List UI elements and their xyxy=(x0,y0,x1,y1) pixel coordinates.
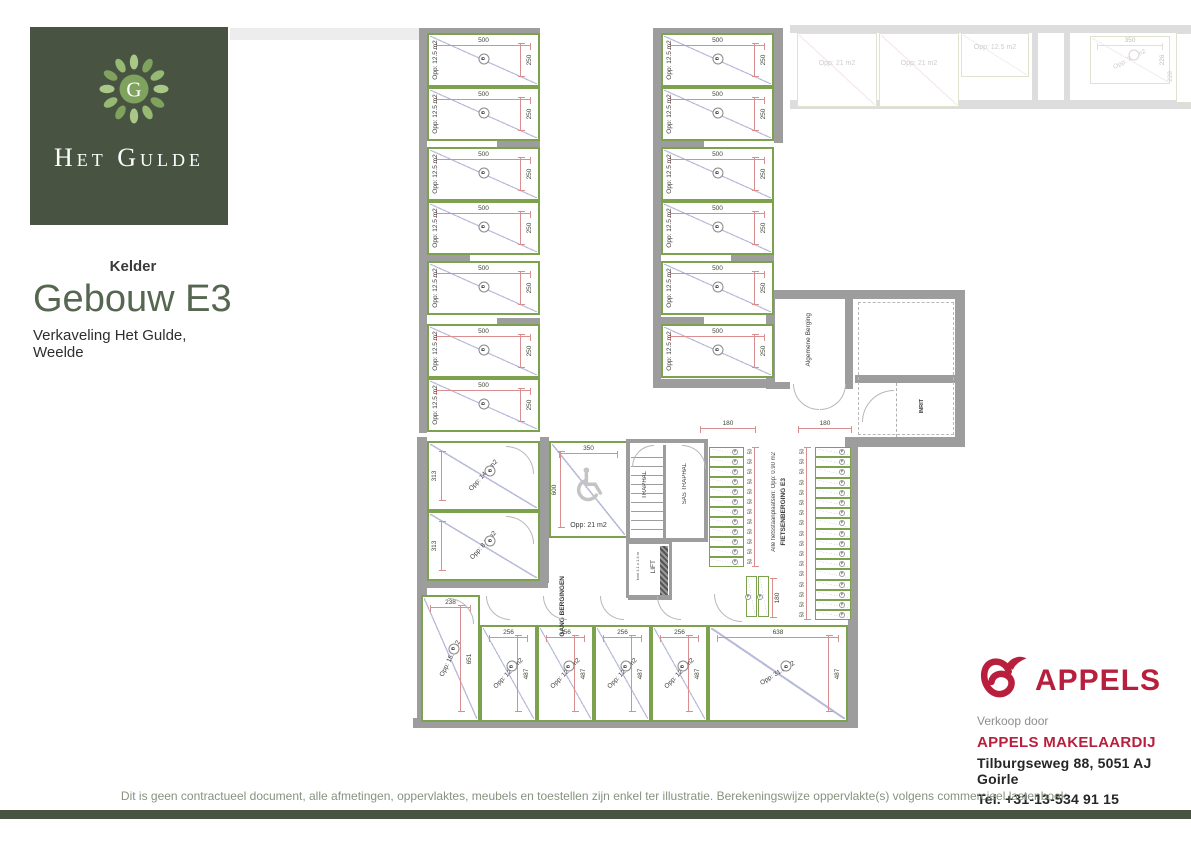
dim-label: 50 xyxy=(800,479,805,485)
unit-marker-label: B xyxy=(481,402,486,405)
unit-marker-label: B xyxy=(680,664,685,667)
dim-label: 180 xyxy=(775,593,782,604)
unit-marker: B xyxy=(478,53,489,64)
area-label: Opp: 12.5 m2 xyxy=(667,40,674,79)
unit-marker: B xyxy=(478,167,489,178)
dim-depth-label: 487 xyxy=(695,668,702,679)
bike-slot: P xyxy=(709,507,744,517)
lift-label: LIFT xyxy=(651,560,658,573)
dim-line: 500 xyxy=(436,99,531,100)
unit-marker: B xyxy=(478,398,489,409)
bike-slot-marker: P xyxy=(732,529,738,535)
unit-marker-label: B xyxy=(488,539,493,542)
dim-line xyxy=(520,157,521,191)
unit-marker: B xyxy=(478,281,489,292)
wheelchair-icon xyxy=(568,465,610,507)
door-arc xyxy=(600,596,624,620)
wall xyxy=(653,379,775,388)
dim-line xyxy=(520,211,521,245)
bike-slot-label: P xyxy=(734,470,736,474)
area-label: Opp: 12.5 m2 xyxy=(433,331,440,370)
stair-wall xyxy=(663,445,666,540)
unit-marker-label: B xyxy=(715,111,720,114)
dim-depth-label: 487 xyxy=(524,668,531,679)
wall xyxy=(653,28,661,384)
bike-slot: P xyxy=(815,539,851,549)
dim-width-label: 256 xyxy=(603,630,642,637)
dim-label: 50 xyxy=(800,561,805,567)
dim-line xyxy=(441,451,442,501)
dim-label: 50 xyxy=(748,449,753,455)
stair-lobby-label: SAS TRAPHAL xyxy=(682,463,688,504)
bike-slot-marker: P xyxy=(732,459,738,465)
dim-width-label: 500 xyxy=(436,92,531,99)
unit-marker: B xyxy=(448,643,459,654)
unit-marker: B xyxy=(485,465,496,476)
dim-label: 50 xyxy=(800,541,805,547)
bike-slot-marker: P xyxy=(732,479,738,485)
unit-marker: B xyxy=(478,344,489,355)
bike-slot-label: P xyxy=(841,461,843,465)
unit-marker-label: B xyxy=(481,171,486,174)
lift-door-hatch xyxy=(660,546,668,595)
bike-slot-marker: P xyxy=(732,449,738,455)
storage-unit: 638487Opp: 31.0 m2B xyxy=(708,625,848,722)
unit-marker: B xyxy=(620,661,631,672)
adjacent-building-wall xyxy=(230,28,425,40)
dim-line xyxy=(520,271,521,305)
floor-plan-page: G Het Gulde Kelder Gebouw E3 Verkaveling… xyxy=(0,0,1191,842)
wall xyxy=(661,317,704,324)
dim-label: 50 xyxy=(800,551,805,557)
bike-slot-label: P xyxy=(841,573,843,577)
area-label: Opp: 12.5 m2 xyxy=(433,385,440,424)
dim-depth-label: 487 xyxy=(638,668,645,679)
bike-slot: P xyxy=(709,487,744,497)
storage-unit: 500250Opp: 12.5 m2B xyxy=(661,33,774,87)
dim-depth-label: 487 xyxy=(581,668,588,679)
unit-marker-label: B xyxy=(481,225,486,228)
dim-label: 50 xyxy=(748,469,753,475)
dim-depth-label: 250 xyxy=(761,169,768,180)
area-label: Opp: 12.5 m2 xyxy=(433,208,440,247)
dim-depth-label: 250 xyxy=(527,169,534,180)
dim-depth-label: 250 xyxy=(761,55,768,66)
dim-depth-label: 250 xyxy=(761,223,768,234)
bike-slot-marker: P xyxy=(839,510,845,516)
bike-slot-label: P xyxy=(734,520,736,524)
area-label: Opp: 21 m2 xyxy=(880,60,958,67)
unit-marker: B xyxy=(563,661,574,672)
area-label: Opp: 12.5 m2 xyxy=(667,268,674,307)
bike-slot: P xyxy=(758,576,769,617)
unit-marker: B xyxy=(712,167,723,178)
dim-label: 50 xyxy=(800,581,805,587)
storage-unit: 500250Opp: 12.5 m2B xyxy=(661,147,774,201)
bike-slot-marker: P xyxy=(839,500,845,506)
agency-intro: Verkoop door xyxy=(977,714,1191,728)
lift-note: kooi 1.1 x 1.4 m xyxy=(636,552,640,580)
unit-marker-label: B xyxy=(715,171,720,174)
bike-slot: P xyxy=(815,600,851,610)
unit-marker: B xyxy=(478,107,489,118)
adjacent-unit: Opp: 21 m2 xyxy=(879,33,959,107)
bike-slot-label: P xyxy=(841,593,843,597)
lift: LIFT kooi 1.1 x 1.4 m xyxy=(626,541,672,598)
door-arc xyxy=(486,596,510,620)
dim-label: 50 xyxy=(800,592,805,598)
storage-unit: 500250Opp: 12.5 m2B xyxy=(427,33,540,87)
dim-line xyxy=(754,211,755,245)
unit-marker-label: B xyxy=(452,647,457,650)
dim-line: 500 xyxy=(670,336,765,337)
storage-unit: 500250Opp: 12.5 m2B xyxy=(427,324,540,378)
dim-label: 50 xyxy=(748,509,753,515)
dim-line xyxy=(520,43,521,77)
agency-logo: APPELS xyxy=(977,652,1191,710)
dim-label: 50 xyxy=(800,459,805,465)
door-arc xyxy=(820,384,846,410)
unit-marker: B xyxy=(712,221,723,232)
bike-slot-label: P xyxy=(841,542,843,546)
unit-marker-label: B xyxy=(488,469,493,472)
dim-width-label: 500 xyxy=(670,266,765,273)
dim-width-label: 500 xyxy=(670,152,765,159)
diagonal-line xyxy=(963,35,1027,75)
bike-slot-label: P xyxy=(841,522,843,526)
bike-slot: P xyxy=(709,557,744,567)
dim-line xyxy=(754,97,755,131)
dim-width-label: 500 xyxy=(670,206,765,213)
dim-line xyxy=(574,635,575,712)
dim-width-label: 500 xyxy=(436,152,531,159)
dim-depth-label: 250 xyxy=(527,346,534,357)
bike-slot-label: P xyxy=(734,480,736,484)
dim-width-label: 350 xyxy=(559,446,618,453)
dim-width-label: 500 xyxy=(436,266,531,273)
area-label: Opp: 12.5 m2 xyxy=(667,331,674,370)
bike-slot-marker: P xyxy=(839,592,845,598)
dim-depth-label: 250 xyxy=(761,346,768,357)
storage-unit: 500250Opp: 12.5 m2B xyxy=(661,87,774,141)
appels-apple-icon xyxy=(977,652,1033,708)
dim-label: 50 xyxy=(800,530,805,536)
disabled-parking-spot: 350 600 Opp: 21 m2 xyxy=(549,441,628,538)
dim-line: 500 xyxy=(670,273,765,274)
bike-slot-marker: P xyxy=(839,551,845,557)
dim-depth-label: 250 xyxy=(527,223,534,234)
dim-label: 50 xyxy=(748,519,753,525)
bike-slot-marker: P xyxy=(839,449,845,455)
dim-width-label: 500 xyxy=(670,38,765,45)
dim-label: 50 xyxy=(800,490,805,496)
dim-width-label: 500 xyxy=(436,206,531,213)
door-arc xyxy=(714,594,742,622)
bike-slot: P xyxy=(815,457,851,467)
unit-marker-label: B xyxy=(623,664,628,667)
bike-slot: P xyxy=(709,547,744,557)
bike-slot-label: P xyxy=(734,490,736,494)
bike-slot-label: P xyxy=(841,512,843,516)
dim-line xyxy=(520,97,521,131)
unit-marker-label: B xyxy=(509,664,514,667)
dim-line: 256 xyxy=(546,637,585,638)
bike-slot: P xyxy=(815,467,851,477)
bike-slot-marker: P xyxy=(839,561,845,567)
unit-marker: B xyxy=(485,535,496,546)
bike-slot: P xyxy=(746,576,757,617)
bike-slot-marker: P xyxy=(732,559,738,565)
dim-line xyxy=(754,334,755,368)
dim-depth-label: 250 xyxy=(527,55,534,66)
footer-bar xyxy=(0,810,1191,819)
bike-slot-label: P xyxy=(734,550,736,554)
bike-slot-marker: P xyxy=(839,582,845,588)
storage-unit: 500250Opp: 12.5 m2B xyxy=(427,201,540,255)
wall xyxy=(955,290,965,447)
dim-label: 50 xyxy=(800,571,805,577)
storage-unit: 500250Opp: 12.5 m2B xyxy=(427,87,540,141)
bike-slot: P xyxy=(815,569,851,579)
wall xyxy=(540,437,549,583)
bike-note: Alle fietsstaanplaatsen: Opp: 0.90 m2 xyxy=(771,452,777,552)
unit-marker: B xyxy=(712,53,723,64)
dim-line: 500 xyxy=(436,213,531,214)
dim-line: 500 xyxy=(436,390,531,391)
dim-label: 50 xyxy=(800,500,805,506)
dim-line: 256 xyxy=(489,637,528,638)
agency-block: APPELS Verkoop door APPELS MAKELAARDIJ T… xyxy=(977,652,1191,807)
unit-marker-label: B xyxy=(715,348,720,351)
bike-slot: P xyxy=(815,549,851,559)
area-label: Opp: 12.5 m2 xyxy=(433,154,440,193)
dim-line: 256 xyxy=(660,637,699,638)
dim-line xyxy=(806,447,807,620)
agency-name: APPELS MAKELAARDIJ xyxy=(977,734,1191,751)
storage-unit: 500250Opp: 12.5 m2B xyxy=(661,324,774,378)
dim-line: 500 xyxy=(670,99,765,100)
bike-slot-marker: P xyxy=(839,469,845,475)
dim-line: 180 xyxy=(700,428,756,429)
bike-slot-label: P xyxy=(734,460,736,464)
dim-width-label: 500 xyxy=(436,329,531,336)
dim-label: 50 xyxy=(748,549,753,555)
storage-unit: 500250Opp: 12.5 m2B xyxy=(661,261,774,315)
bike-slot-marker: P xyxy=(732,499,738,505)
dim-line: 500 xyxy=(436,336,531,337)
bike-slot-label: P xyxy=(841,552,843,556)
dim-depth-label: 651 xyxy=(467,653,474,664)
bike-slot: P xyxy=(709,537,744,547)
unit-marker-label: B xyxy=(481,57,486,60)
diagonal-line xyxy=(799,35,875,105)
dim-depth-label: 250 xyxy=(527,109,534,120)
dim-line: 500 xyxy=(436,273,531,274)
dim-line xyxy=(754,157,755,191)
bike-slot-label: P xyxy=(841,532,843,536)
dim-label: 50 xyxy=(800,520,805,526)
area-label: Opp: 12.5 m2 xyxy=(433,268,440,307)
bike-slot-marker: P xyxy=(839,520,845,526)
door-arc xyxy=(793,384,819,410)
dim-line xyxy=(560,451,561,528)
adjacent-unit: Opp: 12.5 m2 xyxy=(961,33,1029,77)
dim-line xyxy=(828,635,829,712)
adjacent-wall xyxy=(1064,33,1070,103)
bike-slot-label: P xyxy=(759,595,761,599)
dim-line xyxy=(520,334,521,368)
bike-slot: P xyxy=(815,447,851,457)
disclaimer-text: Dit is geen contractueel document, alle … xyxy=(0,789,1191,803)
adjacent-wall xyxy=(790,25,1191,33)
area-label: Opp: 21 m2 xyxy=(551,522,626,529)
bike-slot-marker: P xyxy=(732,549,738,555)
dim-width-label: 500 xyxy=(670,329,765,336)
unit-marker-label: B xyxy=(566,664,571,667)
bike-slot: P xyxy=(815,508,851,518)
unit-marker: B xyxy=(478,221,489,232)
dim-depth-label: 250 xyxy=(761,283,768,294)
unit-marker: B xyxy=(712,344,723,355)
agency-wordmark: APPELS xyxy=(1035,664,1161,698)
dim-label: 50 xyxy=(748,529,753,535)
bike-slot: P xyxy=(709,477,744,487)
stairwell: TRAPHAL SAS TRAPHAL xyxy=(626,439,708,542)
adjacent-unit: 350 Opp: 7.9 m2 226 xyxy=(1090,36,1170,84)
unit-marker-label: B xyxy=(481,111,486,114)
bike-slot-marker: P xyxy=(732,519,738,525)
dim-label: 180 xyxy=(700,421,756,428)
unit-marker-label: B xyxy=(715,225,720,228)
bike-slot: P xyxy=(709,457,744,467)
bike-slot-marker: P xyxy=(732,509,738,515)
dim-label: 50 xyxy=(800,510,805,516)
dim-line xyxy=(441,521,442,571)
dim-depth-label: 250 xyxy=(527,400,534,411)
dim-depth-label: 313 xyxy=(432,541,439,552)
dim-label: 50 xyxy=(748,499,753,505)
unit-marker: B xyxy=(712,281,723,292)
bike-slot: P xyxy=(815,559,851,569)
bike-slot-marker: P xyxy=(839,571,845,577)
dim-label: 50 xyxy=(748,479,753,485)
dim-label: 180 xyxy=(798,421,852,428)
area-label: Opp: 12.5 m2 xyxy=(433,94,440,133)
storage-unit: 500250Opp: 12.5 m2B xyxy=(427,261,540,315)
door-arc xyxy=(682,445,706,469)
bike-slot-label: P xyxy=(747,595,749,599)
bike-slot-label: P xyxy=(841,583,843,587)
bike-slot-marker: P xyxy=(839,541,845,547)
dim-label: 50 xyxy=(800,449,805,455)
wall xyxy=(845,290,853,389)
bike-slot-label: P xyxy=(841,450,843,454)
bike-slot-marker: P xyxy=(732,489,738,495)
bike-slot: P xyxy=(815,498,851,508)
stair-label: TRAPHAL xyxy=(642,471,648,499)
dim-width-label: 638 xyxy=(717,630,839,637)
storage-unit: 256487Opp: 12.4 m2B xyxy=(594,625,651,722)
dim-width-label: 500 xyxy=(436,38,531,45)
unit-marker: B xyxy=(506,661,517,672)
door-arc xyxy=(657,596,681,620)
common-storage-room: Algemene Berging xyxy=(775,299,845,382)
dim-label: 50 xyxy=(800,602,805,608)
bike-slot: P xyxy=(709,447,744,457)
bike-slot-label: P xyxy=(734,450,736,454)
dim-line: 500 xyxy=(670,45,765,46)
area-label: Opp: 12.5 m2 xyxy=(667,154,674,193)
dim-label: 350 xyxy=(1097,38,1163,45)
bike-slot-label: P xyxy=(841,481,843,485)
dim-line: 500 xyxy=(670,159,765,160)
bike-slot: P xyxy=(815,488,851,498)
bike-slot: P xyxy=(709,527,744,537)
bike-slot-label: P xyxy=(734,540,736,544)
dim-line xyxy=(631,635,632,712)
agency-address: Tilburgseweg 88, 5051 AJ Goirle xyxy=(977,755,1191,787)
bike-slot: P xyxy=(815,580,851,590)
dim-line: 500 xyxy=(436,45,531,46)
bike-slot-label: P xyxy=(841,614,843,618)
dim-line: 350 xyxy=(559,453,618,454)
bike-slot-marker: P xyxy=(839,459,845,465)
area-label: Opp: 12.5 m2 xyxy=(667,94,674,133)
bike-slot: P xyxy=(815,529,851,539)
bike-slot-marker: P xyxy=(757,594,763,600)
wall xyxy=(419,28,427,433)
bike-slot-label: P xyxy=(841,491,843,495)
dim-depth-label: 313 xyxy=(432,471,439,482)
dim-line: 500 xyxy=(436,159,531,160)
unit-marker-label: B xyxy=(481,348,486,351)
dim-line xyxy=(754,43,755,77)
unit-marker-label: B xyxy=(784,664,789,667)
dim-label: 50 xyxy=(748,559,753,565)
dim-width-label: 500 xyxy=(436,383,531,390)
unit-marker: B xyxy=(781,661,792,672)
door-arc xyxy=(632,445,654,467)
area-label: Opp: 12.5 m2 xyxy=(433,40,440,79)
bike-slot-marker: P xyxy=(732,469,738,475)
dim-width-label: 256 xyxy=(489,630,528,637)
bike-slot-marker: P xyxy=(839,531,845,537)
storage-unit: 500250Opp: 12.5 m2B xyxy=(427,378,540,432)
unit-marker: B xyxy=(677,661,688,672)
unit-marker-label: B xyxy=(715,285,720,288)
unit-marker xyxy=(1128,50,1139,61)
dim-depth-label: 600 xyxy=(552,484,559,495)
bike-slot-label: P xyxy=(734,560,736,564)
dim-line: 500 xyxy=(670,213,765,214)
area-label: Opp: 21 m2 xyxy=(798,60,876,67)
door-arc xyxy=(543,596,567,620)
dim-line xyxy=(754,447,755,567)
bike-slot-label: P xyxy=(734,530,736,534)
ramp-divider xyxy=(896,383,897,437)
adjacent-unit xyxy=(1176,33,1191,103)
dim-line xyxy=(517,635,518,712)
bike-slot: P xyxy=(815,518,851,528)
dim-line xyxy=(688,635,689,712)
bike-slot-marker: P xyxy=(839,602,845,608)
dim-label: 50 xyxy=(748,459,753,465)
storage-unit: 500250Opp: 12.5 m2B xyxy=(427,147,540,201)
storage-unit: 256487Opp: 12.4 m2B xyxy=(651,625,708,722)
adjacent-unit: Opp: 21 m2 xyxy=(797,33,877,107)
dim-depth-label: 250 xyxy=(527,283,534,294)
bike-slot-marker: P xyxy=(839,612,845,618)
